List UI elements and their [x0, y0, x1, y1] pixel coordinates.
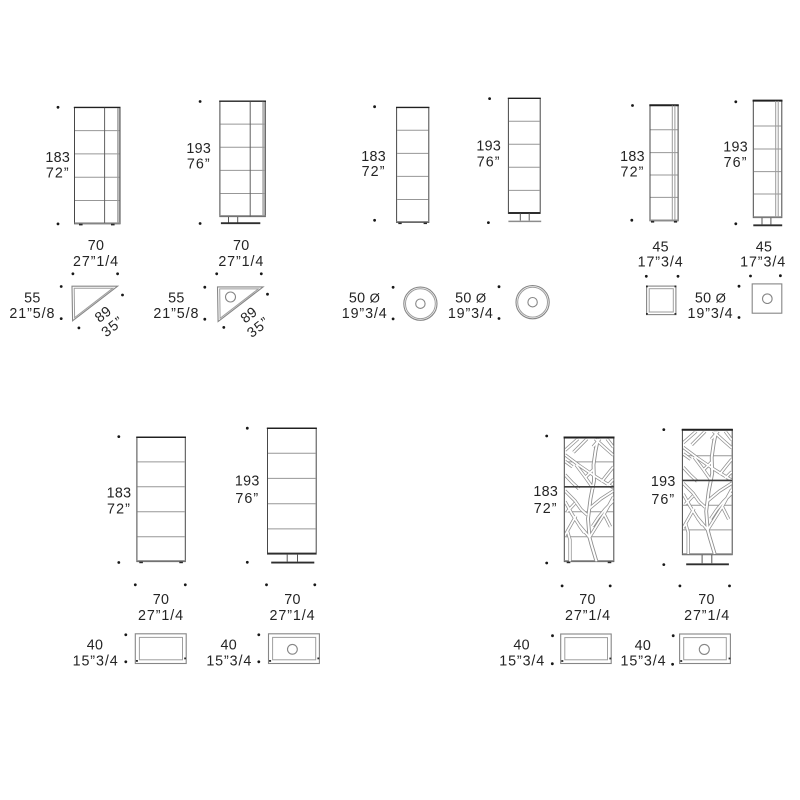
svg-text:70: 70: [284, 592, 301, 608]
svg-text:40: 40: [513, 638, 530, 654]
svg-text:183: 183: [107, 486, 132, 502]
svg-text:76”: 76”: [187, 157, 211, 173]
svg-text:76”: 76”: [235, 491, 259, 507]
svg-text:72”: 72”: [46, 165, 70, 181]
svg-text:72”: 72”: [362, 164, 386, 180]
svg-text:50 Ø: 50 Ø: [349, 290, 380, 306]
svg-text:27”1/4: 27”1/4: [138, 608, 184, 624]
svg-text:70: 70: [153, 592, 170, 608]
svg-text:70: 70: [88, 238, 105, 254]
svg-text:15”3/4: 15”3/4: [73, 653, 119, 669]
svg-text:183: 183: [361, 149, 386, 165]
svg-text:55: 55: [168, 290, 185, 306]
svg-text:27”1/4: 27”1/4: [565, 608, 611, 624]
svg-text:76”: 76”: [651, 492, 675, 508]
svg-text:72”: 72”: [534, 501, 558, 517]
svg-text:19”3/4: 19”3/4: [448, 306, 494, 322]
svg-text:19”3/4: 19”3/4: [688, 306, 734, 322]
svg-text:45: 45: [652, 240, 669, 256]
svg-text:72”: 72”: [107, 502, 131, 518]
svg-text:15”3/4: 15”3/4: [621, 654, 667, 670]
svg-text:21”5/8: 21”5/8: [153, 306, 199, 322]
svg-text:15”3/4: 15”3/4: [499, 653, 545, 669]
svg-text:183: 183: [533, 484, 558, 500]
svg-text:19”3/4: 19”3/4: [342, 306, 388, 322]
svg-text:193: 193: [651, 474, 676, 490]
svg-text:27”1/4: 27”1/4: [270, 608, 316, 624]
svg-text:193: 193: [186, 141, 211, 157]
svg-text:193: 193: [723, 140, 748, 156]
svg-text:27”1/4: 27”1/4: [684, 608, 730, 624]
svg-text:40: 40: [87, 638, 104, 654]
svg-text:183: 183: [45, 150, 70, 166]
svg-text:70: 70: [579, 592, 596, 608]
svg-text:15”3/4: 15”3/4: [206, 653, 252, 669]
svg-text:72”: 72”: [621, 165, 645, 181]
svg-text:40: 40: [220, 638, 237, 654]
svg-text:50 Ø: 50 Ø: [695, 290, 726, 306]
svg-text:76”: 76”: [724, 155, 748, 171]
svg-text:55: 55: [24, 290, 41, 306]
svg-text:27”1/4: 27”1/4: [218, 254, 264, 270]
svg-text:27”1/4: 27”1/4: [73, 254, 119, 270]
svg-text:40: 40: [635, 638, 652, 654]
svg-text:76”: 76”: [477, 154, 501, 170]
svg-text:193: 193: [235, 474, 260, 490]
svg-text:17”3/4: 17”3/4: [638, 255, 684, 271]
svg-text:183: 183: [620, 149, 645, 165]
svg-text:17”3/4: 17”3/4: [740, 255, 786, 271]
svg-text:45: 45: [756, 240, 773, 256]
svg-text:70: 70: [698, 592, 715, 608]
svg-text:21”5/8: 21”5/8: [9, 306, 55, 322]
svg-text:50 Ø: 50 Ø: [455, 290, 486, 306]
svg-text:193: 193: [476, 139, 501, 155]
svg-text:70: 70: [233, 238, 250, 254]
